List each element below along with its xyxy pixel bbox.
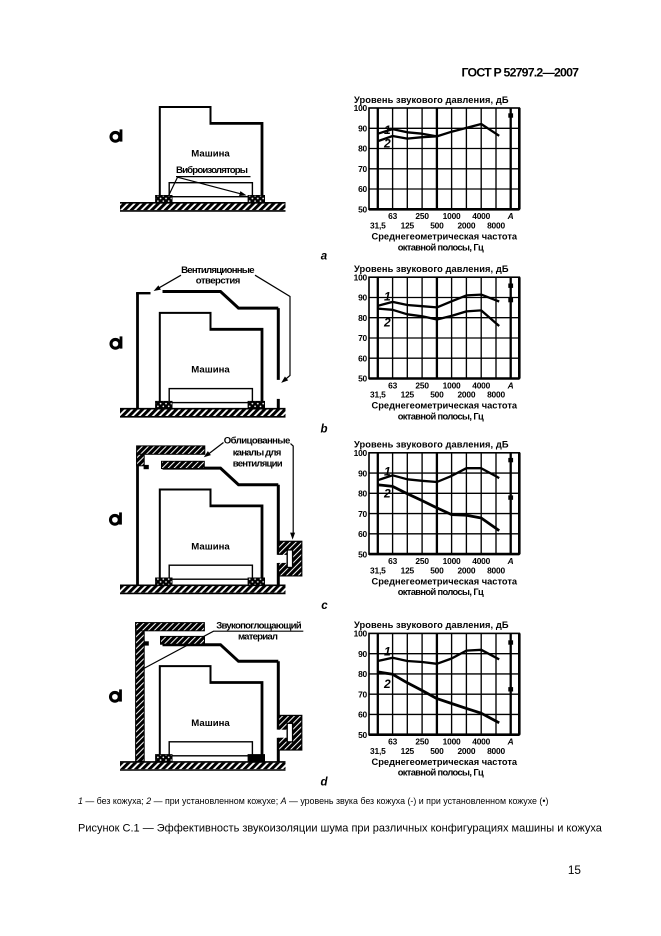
svg-text:1: 1 [384,123,391,137]
svg-text:Виброизоляторы: Виброизоляторы [176,165,248,176]
svg-text:90: 90 [358,293,367,303]
svg-text:Вентиляционные: Вентиляционные [181,265,255,276]
svg-text:2: 2 [383,487,391,501]
svg-text:b: b [320,424,327,436]
svg-text:2000: 2000 [457,221,475,231]
svg-text:Уровень звукового давления, дБ: Уровень звукового давления, дБ [354,620,509,630]
svg-text:100: 100 [354,629,368,639]
svg-text:А: А [507,737,514,747]
svg-text:63: 63 [388,556,397,566]
svg-text:1: 1 [384,290,391,304]
svg-text:70: 70 [358,164,367,174]
svg-text:Уровень звукового давления, дБ: Уровень звукового давления, дБ [354,264,509,274]
svg-text:Среднегеометрическая частота: Среднегеометрическая частота [372,757,518,767]
svg-text:250: 250 [415,211,429,221]
svg-text:31,5: 31,5 [370,390,386,400]
svg-text:15: 15 [568,863,582,877]
svg-text:a: a [321,251,328,263]
svg-text:Машина: Машина [191,365,230,376]
svg-text:каналы для: каналы для [233,447,282,458]
svg-text:70: 70 [358,689,367,699]
svg-text:А: А [507,211,514,221]
svg-text:2: 2 [383,677,391,691]
svg-text:500: 500 [430,390,444,400]
svg-text:8000: 8000 [487,221,505,231]
svg-text:1 — без кожуха; 2 — при устано: 1 — без кожуха; 2 — при установленном ко… [78,796,548,806]
svg-text:октавной полосы, Гц: октавной полосы, Гц [398,242,484,252]
svg-text:2: 2 [383,137,391,151]
svg-text:2000: 2000 [457,390,475,400]
svg-text:отверстия: отверстия [196,276,241,287]
svg-text:90: 90 [358,649,367,659]
svg-text:8000: 8000 [487,390,505,400]
svg-text:50: 50 [358,549,367,559]
svg-text:октавной полосы, Гц: октавной полосы, Гц [398,587,484,597]
svg-text:октавной полосы, Гц: октавной полосы, Гц [398,768,484,778]
svg-text:Среднегеометрическая частота: Среднегеометрическая частота [372,232,518,242]
svg-text:31,5: 31,5 [370,565,386,575]
svg-text:31,5: 31,5 [370,746,386,756]
svg-text:2: 2 [383,316,391,330]
svg-text:80: 80 [358,489,367,499]
svg-text:d: d [320,777,328,789]
svg-text:Облицованные: Облицованные [224,436,290,447]
svg-text:2000: 2000 [457,746,475,756]
svg-text:50: 50 [358,374,367,384]
svg-text:500: 500 [430,221,444,231]
svg-text:250: 250 [415,556,429,566]
svg-text:c: c [321,600,328,612]
svg-text:70: 70 [358,333,367,343]
svg-text:Рисунок С.1 — Эффективность зв: Рисунок С.1 — Эффективность звукоизоляци… [78,823,603,835]
svg-text:80: 80 [358,669,367,679]
svg-text:1: 1 [384,465,391,479]
svg-text:100: 100 [354,448,368,458]
svg-text:80: 80 [358,144,367,154]
svg-text:90: 90 [358,468,367,478]
svg-text:250: 250 [415,737,429,747]
svg-text:63: 63 [388,211,397,221]
svg-text:материал: материал [238,632,278,643]
svg-text:60: 60 [358,184,367,194]
svg-text:Среднегеометрическая частота: Среднегеометрическая частота [372,401,518,411]
svg-text:Машина: Машина [191,148,230,159]
svg-text:31,5: 31,5 [370,221,386,231]
svg-text:Среднегеометрическая частота: Среднегеометрическая частота [372,576,518,586]
svg-text:8000: 8000 [487,565,505,575]
svg-text:63: 63 [388,737,397,747]
svg-text:70: 70 [358,509,367,519]
svg-text:Машина: Машина [191,541,230,552]
svg-text:8000: 8000 [487,746,505,756]
svg-text:Уровень звукового давления, дБ: Уровень звукового давления, дБ [354,95,509,105]
svg-text:125: 125 [401,746,415,756]
svg-text:А: А [507,380,514,390]
svg-text:250: 250 [415,380,429,390]
svg-text:Звукопоглощающий: Звукопоглощающий [216,620,302,631]
svg-text:80: 80 [358,313,367,323]
svg-text:50: 50 [358,205,367,215]
svg-text:1: 1 [384,645,391,659]
svg-text:Уровень звукового давления, дБ: Уровень звукового давления, дБ [354,440,509,450]
svg-text:125: 125 [401,221,415,231]
svg-text:60: 60 [358,529,367,539]
svg-text:60: 60 [358,353,367,363]
svg-text:60: 60 [358,710,367,720]
svg-text:500: 500 [430,565,444,575]
svg-text:63: 63 [388,380,397,390]
svg-text:125: 125 [401,390,415,400]
svg-text:100: 100 [354,103,368,113]
svg-text:90: 90 [358,124,367,134]
svg-text:2000: 2000 [457,565,475,575]
svg-text:100: 100 [354,272,368,282]
svg-text:октавной полосы, Гц: октавной полосы, Гц [398,412,484,422]
svg-text:500: 500 [430,746,444,756]
svg-text:ГОСТ Р 52797.2—2007: ГОСТ Р 52797.2—2007 [462,66,580,80]
svg-text:вентиляции: вентиляции [233,459,283,470]
svg-text:Машина: Машина [191,718,230,729]
svg-text:А: А [507,556,514,566]
svg-text:125: 125 [401,565,415,575]
svg-text:50: 50 [358,730,367,740]
